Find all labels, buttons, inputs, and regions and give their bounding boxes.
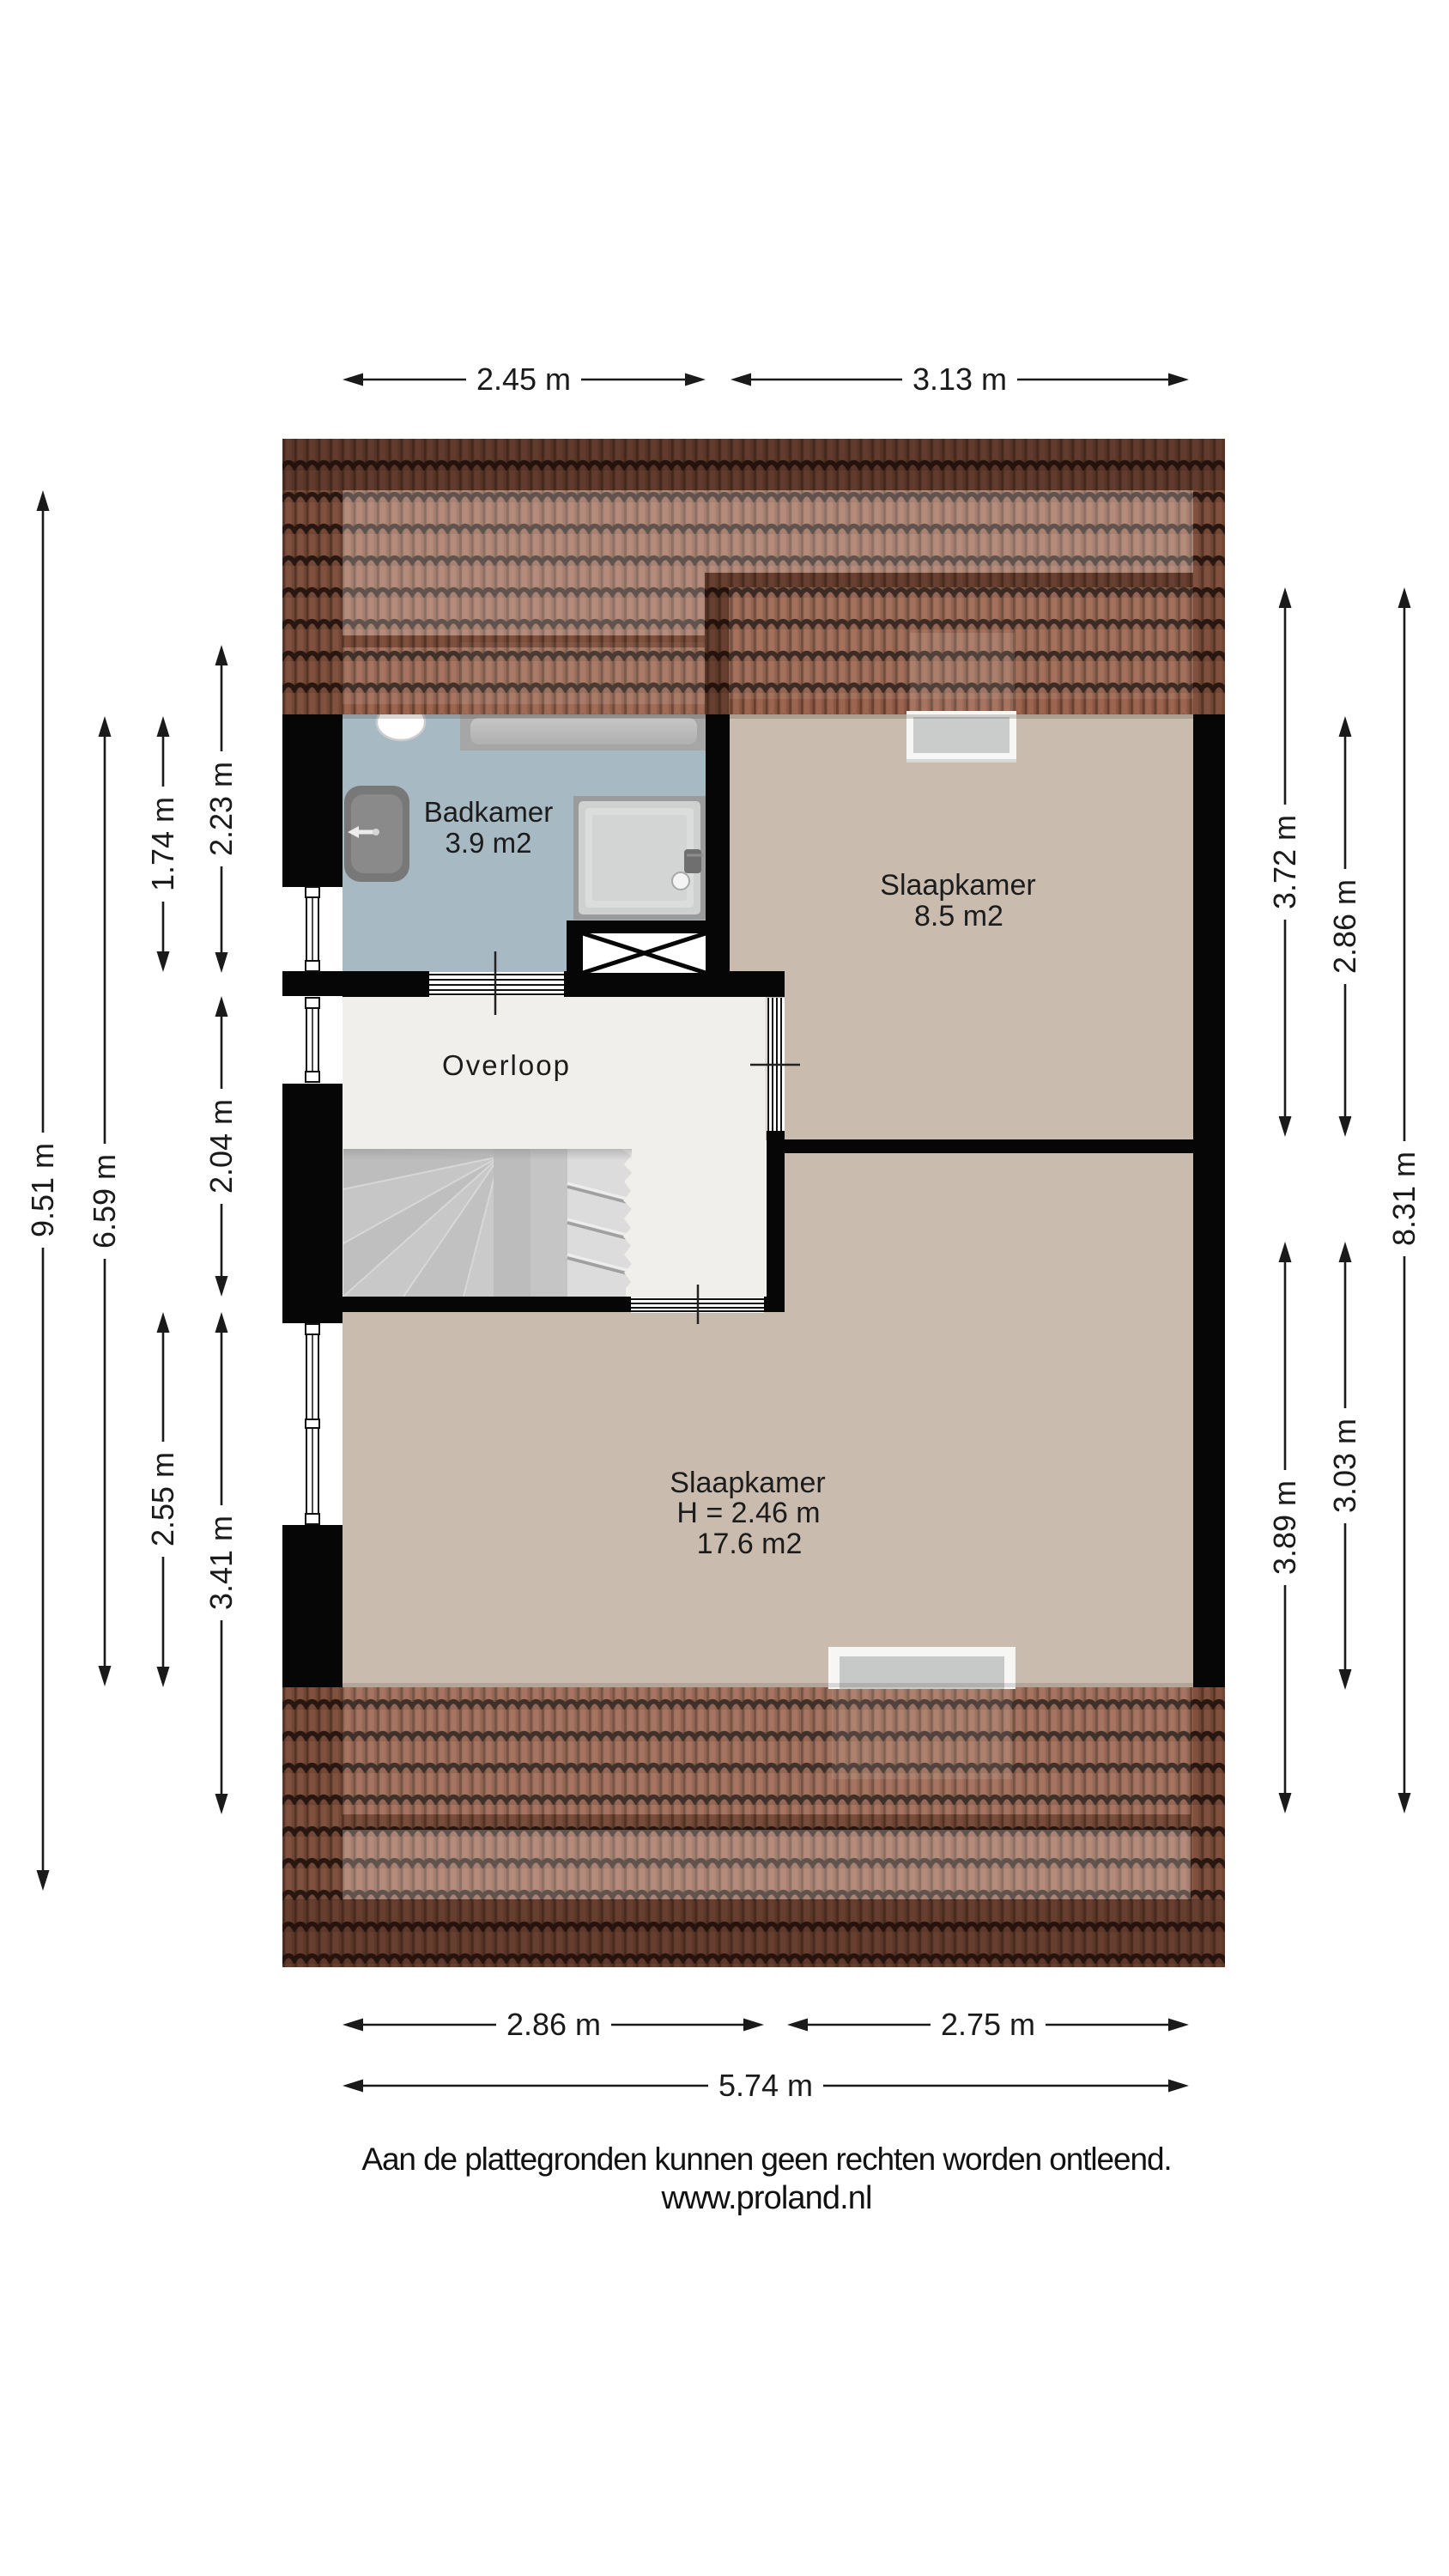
svg-text:2.86 m: 2.86 m — [1327, 879, 1362, 974]
svg-text:3.89 m: 3.89 m — [1267, 1480, 1302, 1575]
svg-text:1.74 m: 1.74 m — [145, 797, 180, 891]
svg-text:9.51 m: 9.51 m — [25, 1143, 60, 1237]
svg-text:6.59 m: 6.59 m — [87, 1154, 122, 1249]
svg-text:17.6 m2: 17.6 m2 — [697, 1528, 803, 1560]
svg-text:www.proland.nl: www.proland.nl — [660, 2180, 871, 2216]
svg-text:2.04 m: 2.04 m — [203, 1099, 239, 1194]
svg-text:2.86 m: 2.86 m — [506, 2007, 601, 2042]
svg-text:8.5 m2: 8.5 m2 — [914, 900, 1003, 933]
svg-text:2.23 m: 2.23 m — [203, 762, 239, 856]
svg-text:3.03 m: 3.03 m — [1327, 1419, 1362, 1513]
svg-text:3.13 m: 3.13 m — [912, 361, 1007, 397]
svg-text:Overloop: Overloop — [442, 1049, 571, 1081]
svg-text:3.41 m: 3.41 m — [203, 1516, 239, 1610]
svg-text:5.74 m: 5.74 m — [718, 2068, 813, 2103]
svg-text:3.9 m2: 3.9 m2 — [446, 827, 532, 859]
svg-text:Badkamer: Badkamer — [424, 796, 553, 828]
svg-text:2.55 m: 2.55 m — [145, 1452, 180, 1546]
svg-text:Aan de plattegronden kunnen ge: Aan de plattegronden kunnen geen rechten… — [361, 2142, 1171, 2177]
svg-text:H = 2.46 m: H = 2.46 m — [676, 1497, 820, 1529]
svg-text:Slaapkamer: Slaapkamer — [670, 1467, 825, 1499]
svg-text:2.75 m: 2.75 m — [941, 2007, 1035, 2042]
svg-text:3.72 m: 3.72 m — [1267, 815, 1302, 909]
svg-text:8.31 m: 8.31 m — [1386, 1151, 1422, 1246]
svg-text:Slaapkamer: Slaapkamer — [880, 869, 1035, 902]
svg-text:2.45 m: 2.45 m — [476, 361, 571, 397]
